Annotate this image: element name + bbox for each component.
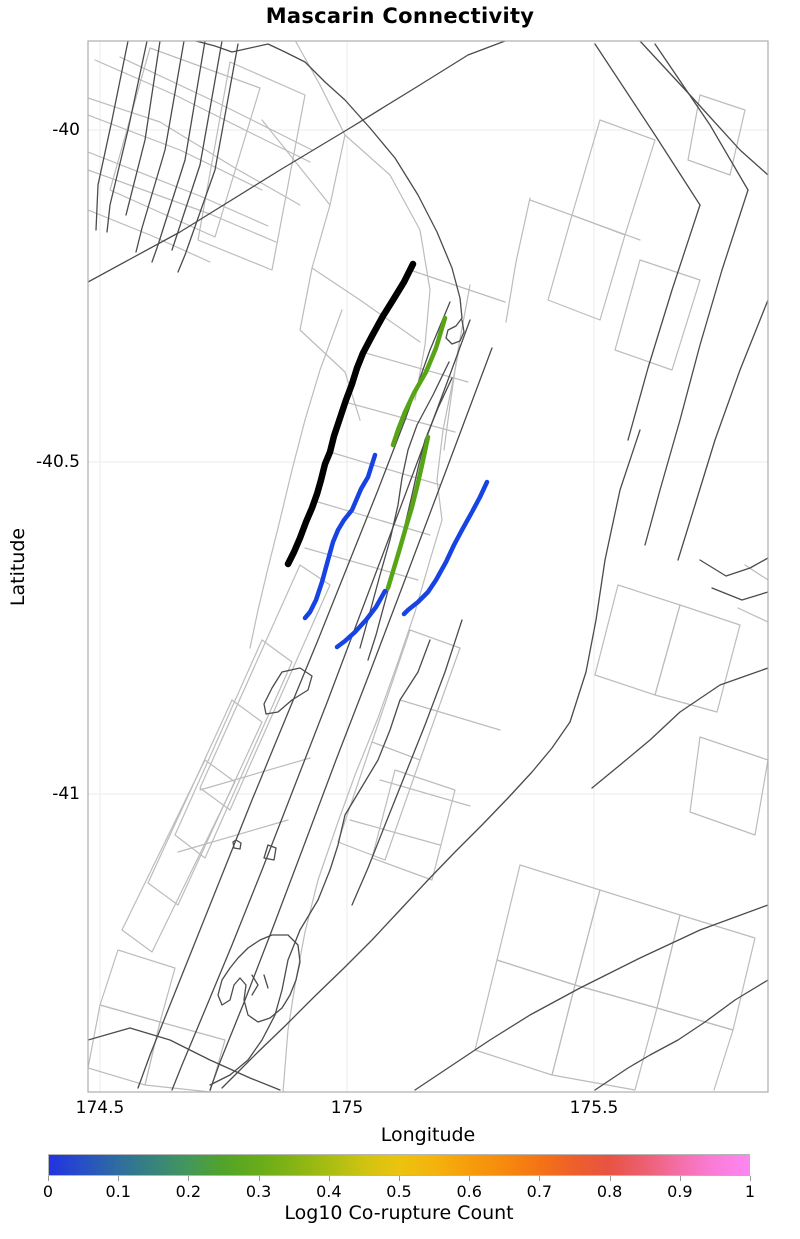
figure-mascarin-connectivity: Mascarin Connectivity Longitude Latitude… — [0, 0, 800, 1239]
fault-trace-light — [444, 285, 470, 450]
fault-trace-dark — [640, 41, 768, 175]
fault-trace-light — [410, 270, 505, 302]
colorbar-tick-label: 0.1 — [105, 1182, 130, 1201]
colorbar-tick-label: 0.8 — [597, 1182, 622, 1201]
fault-trace-light — [506, 198, 530, 322]
y-axis-label: Latitude — [7, 487, 29, 647]
fault-trace-light — [120, 57, 312, 150]
fault-trace-light — [690, 737, 768, 835]
colorbar-tick-mark — [399, 1176, 400, 1181]
colorbar-tick-mark — [469, 1176, 470, 1181]
x-tick-label: 175 — [331, 1098, 363, 1118]
x-tick-label: 175.5 — [570, 1098, 619, 1118]
fault-trace-light — [88, 152, 268, 226]
fault-trace-dark — [678, 300, 768, 560]
fault-trace-light — [88, 115, 262, 190]
fault-trace-dark — [172, 320, 470, 1090]
fault-trace-dark — [360, 362, 449, 648]
colorbar-tick-label: 0.2 — [176, 1182, 201, 1201]
fault-trace-light — [250, 310, 342, 648]
fault-trace-dark — [178, 44, 238, 272]
fault-trace-dark — [126, 41, 160, 215]
fault-trace-light — [552, 985, 657, 1090]
map-plot-canvas — [0, 0, 800, 1239]
colorbar-tick-mark — [750, 1176, 751, 1181]
colorbar-tick-mark — [610, 1176, 611, 1181]
fault-trace-dark — [628, 205, 700, 440]
fault-trace-light — [657, 1008, 733, 1090]
y-tick-label: -41 — [0, 784, 80, 804]
fault-trace-dark — [415, 905, 768, 1090]
fault-trace-light — [296, 42, 360, 420]
fault-trace-light — [88, 1005, 160, 1085]
colorbar-tick-label: 0.3 — [246, 1182, 271, 1201]
fault-trace-light — [100, 950, 175, 1022]
colorbar-gradient — [48, 1154, 750, 1176]
colorbar-tick-mark — [48, 1176, 49, 1181]
fault-trace-dark — [264, 975, 268, 988]
fault-trace-dark — [264, 845, 276, 860]
colorbar-tick-label: 0.5 — [386, 1182, 411, 1201]
fault-trace-light — [745, 565, 768, 580]
colorbar-tick-label: 0.4 — [316, 1182, 341, 1201]
colorbar-tick-label: 0.6 — [456, 1182, 481, 1201]
colorbar-tick-label: 0.7 — [527, 1182, 552, 1201]
colorbar-tick-mark — [539, 1176, 540, 1181]
fault-trace-dark — [645, 190, 748, 545]
fault-trace-light — [338, 742, 420, 860]
colorbar-tick-mark — [188, 1176, 189, 1181]
colorbar-label: Log10 Co-rupture Count — [48, 1202, 750, 1224]
fault-trace-dark — [595, 980, 768, 1090]
fault-trace-dark — [210, 640, 430, 1085]
fault-trace-light — [283, 345, 460, 1092]
fault-trace-dark — [96, 41, 128, 230]
colorbar-tick-mark — [118, 1176, 119, 1181]
fault-trace-light — [262, 120, 330, 205]
corupture-segment-blue-middle — [337, 591, 385, 647]
fault-trace-light — [200, 758, 310, 790]
fault-trace-dark — [655, 44, 748, 190]
map-layers — [88, 41, 768, 1092]
colorbar-tick-label: 0.9 — [667, 1182, 692, 1201]
fault-trace-dark — [264, 668, 312, 714]
fault-trace-light — [530, 200, 640, 240]
fault-trace-dark — [592, 668, 768, 788]
fault-trace-dark — [210, 348, 492, 1090]
fault-trace-light — [350, 820, 440, 845]
fault-trace-dark — [712, 588, 768, 600]
fault-trace-light — [200, 565, 330, 810]
fault-trace-light — [497, 865, 600, 985]
colorbar-tick-mark — [680, 1176, 681, 1181]
fault-trace-light — [738, 608, 768, 622]
fault-trace-light — [122, 760, 235, 952]
fault-trace-light — [88, 98, 300, 205]
fault-trace-light — [575, 890, 680, 1008]
corupture-segment-blue-left — [305, 455, 375, 618]
colorbar-tick-mark — [329, 1176, 330, 1181]
x-axis-label: Longitude — [88, 1124, 768, 1146]
colorbar-tick-label: 0 — [43, 1182, 53, 1201]
fault-trace-light — [615, 260, 700, 370]
fault-trace-light — [400, 700, 500, 730]
fault-trace-light — [175, 640, 292, 858]
fault-trace-dark — [196, 41, 464, 344]
y-tick-label: -40.5 — [0, 452, 80, 472]
fault-trace-light — [148, 700, 262, 905]
x-tick-label: 174.5 — [76, 1098, 125, 1118]
fault-trace-light — [572, 120, 655, 235]
chart-title: Mascarin Connectivity — [0, 4, 800, 28]
y-tick-label: -40 — [0, 120, 80, 140]
colorbar-tick-label: 1 — [745, 1182, 755, 1201]
fault-trace-light — [655, 605, 740, 712]
colorbar-tick-mark — [259, 1176, 260, 1181]
corupture-segment-green-upper — [393, 318, 445, 445]
fault-trace-light — [595, 585, 680, 695]
